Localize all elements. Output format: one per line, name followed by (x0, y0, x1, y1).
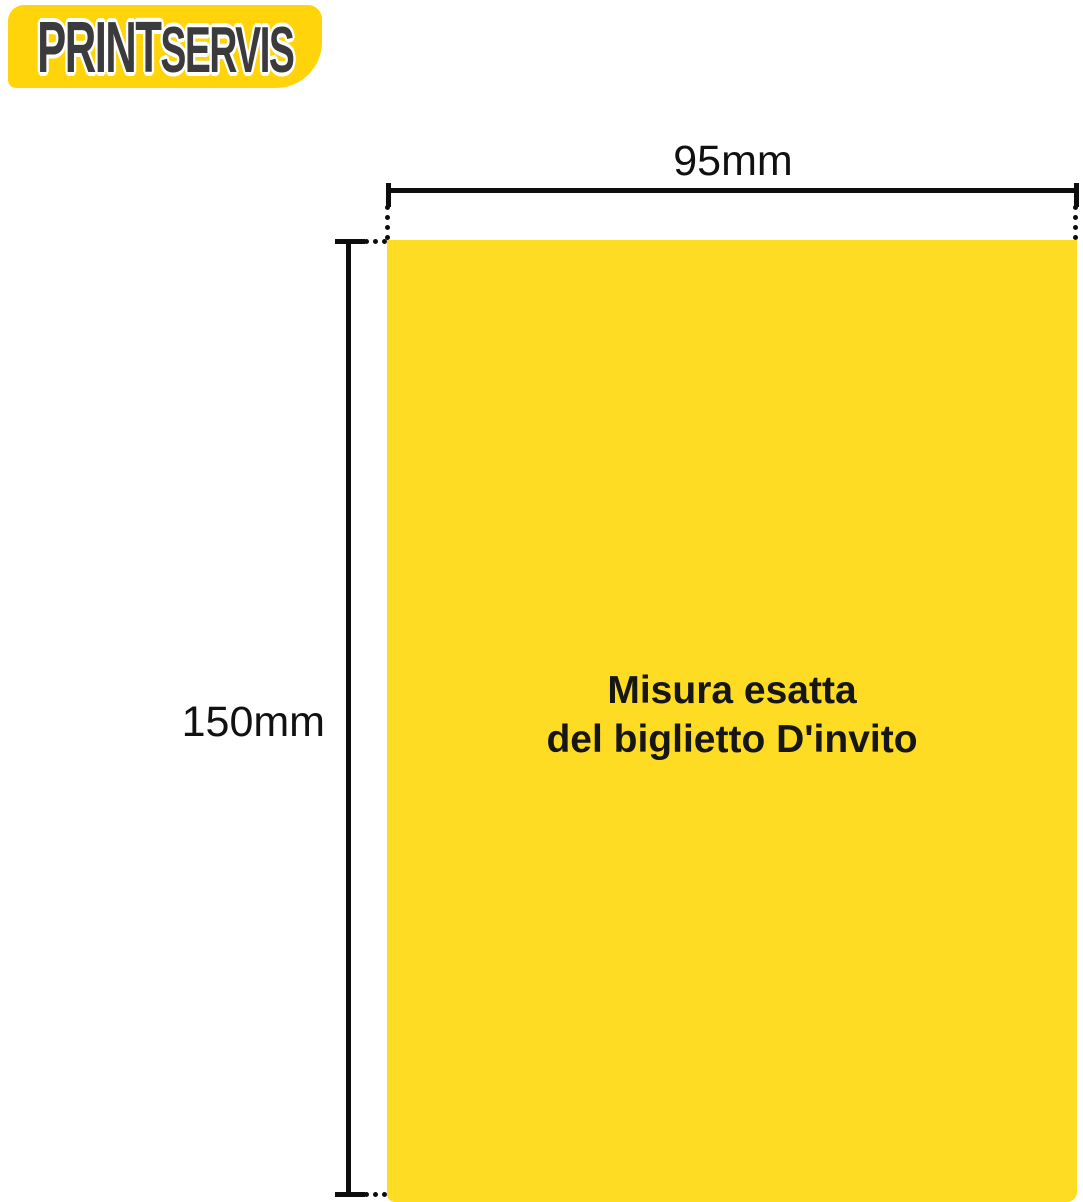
height-dimension-label: 150mm (130, 697, 325, 747)
width-dimension-label: 95mm (388, 136, 1078, 186)
height-dimension-bottom-tick (335, 1192, 365, 1197)
height-dimension-line (346, 241, 351, 1196)
card-caption-line1: Misura esatta (546, 666, 917, 715)
logo-text-print: PRINT (37, 6, 160, 88)
logo-text-servis: SERVIS (160, 13, 293, 86)
product-infographic: PRINTSERVIS 95mm 150mm Misura esatta del… (0, 0, 1083, 1202)
height-extension-dotted-line-bottom (364, 1192, 387, 1197)
width-dimension-left-tick (386, 183, 391, 207)
height-extension-dotted-line-top (364, 239, 387, 244)
width-extension-dotted-line-left (385, 205, 390, 240)
invitation-card: Misura esatta del biglietto D'invito (387, 240, 1077, 1202)
card-caption: Misura esatta del biglietto D'invito (546, 666, 917, 764)
width-dimension-line (389, 188, 1076, 193)
logo-text: PRINTSERVIS (37, 4, 293, 89)
height-dimension-top-tick (335, 239, 365, 244)
width-extension-dotted-line-right (1073, 205, 1078, 240)
card-caption-line2: del biglietto D'invito (546, 715, 917, 764)
width-dimension-right-tick (1074, 183, 1079, 207)
printservis-logo: PRINTSERVIS (8, 5, 322, 88)
